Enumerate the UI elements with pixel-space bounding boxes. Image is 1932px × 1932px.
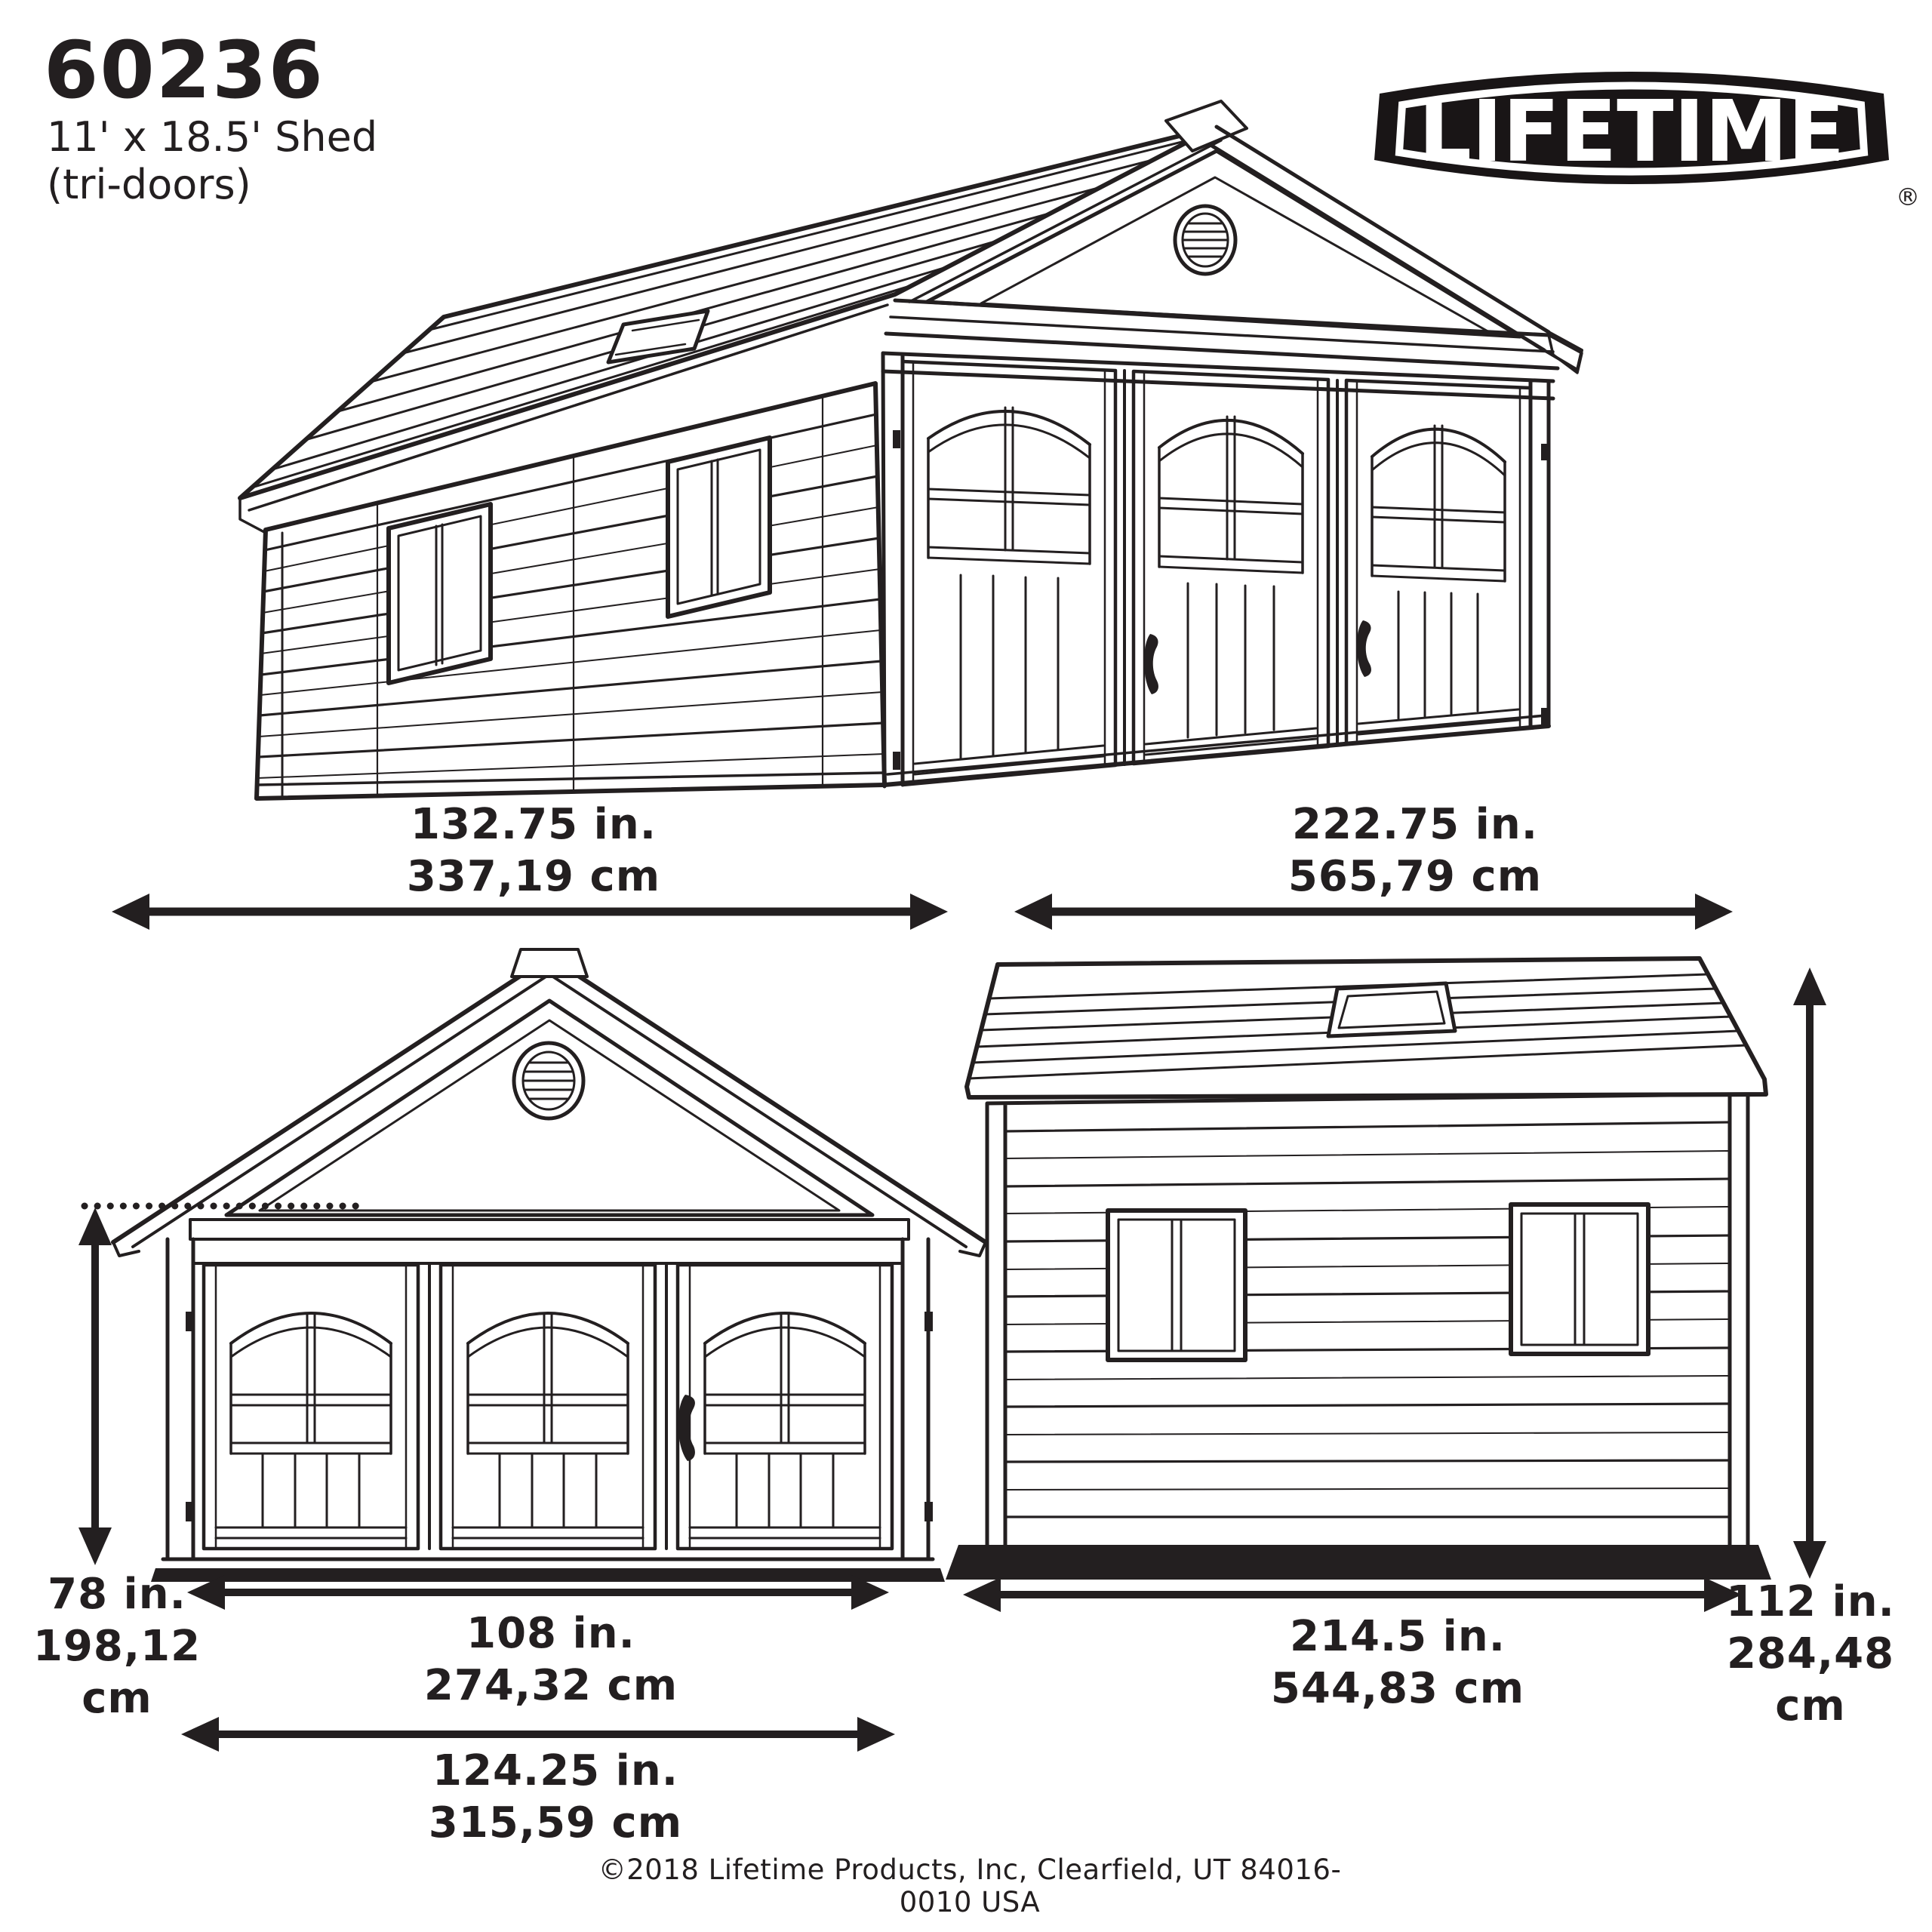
shed-side-view xyxy=(940,943,1932,1600)
hinge-icon xyxy=(893,430,900,448)
shed-isometric-view xyxy=(113,60,1623,823)
dimension-label-front-width: 222.75 in. 565,79 cm xyxy=(1189,798,1641,903)
hinge-icon xyxy=(1541,708,1549,724)
dimension-label-wall-height: 78 in. 198,12 cm xyxy=(0,1568,234,1724)
wall-height-inches: 78 in. xyxy=(0,1568,234,1620)
hinge-icon xyxy=(924,1502,933,1521)
iso-front-facade xyxy=(883,353,1553,786)
front-door xyxy=(204,1265,418,1549)
dimension-label-door-opening-width: 108 in. 274,32 cm xyxy=(325,1607,777,1712)
hinge-icon xyxy=(186,1312,194,1331)
door-opening-width-cm: 274,32 cm xyxy=(325,1660,777,1712)
spec-sheet-page: { "header": { "model_number": "60236", "… xyxy=(0,0,1932,1932)
side-window xyxy=(1511,1204,1648,1354)
registered-trademark-icon: ® xyxy=(1896,183,1920,211)
gable-vent-icon xyxy=(514,1043,583,1118)
side-width-cm: 337,19 cm xyxy=(307,851,760,903)
door-handle-icon xyxy=(678,1395,695,1461)
dimension-label-side-base-width: 214.5 in. 544,83 cm xyxy=(1171,1611,1624,1715)
iso-door xyxy=(1134,371,1328,764)
hinge-icon xyxy=(1541,444,1549,460)
peak-height-inches: 112 in. xyxy=(1690,1576,1930,1628)
side-width-inches: 132.75 in. xyxy=(307,798,760,851)
hinge-icon xyxy=(893,752,900,770)
copyright-line: ©2018 Lifetime Products, Inc, Clearfield… xyxy=(589,1854,1351,1918)
side-wall xyxy=(946,1094,1771,1580)
side-base-width-inches: 214.5 in. xyxy=(1171,1611,1624,1663)
side-base xyxy=(946,1545,1771,1580)
side-window xyxy=(668,438,770,617)
gable-vent-icon xyxy=(1175,206,1235,274)
hinge-icon xyxy=(924,1312,933,1331)
wall-height-cm: 198,12 cm xyxy=(0,1620,234,1724)
skylight xyxy=(608,311,708,362)
side-base-width-cm: 544,83 cm xyxy=(1171,1663,1624,1715)
front-door xyxy=(678,1265,892,1549)
door-handle-icon xyxy=(1144,634,1158,694)
iso-door xyxy=(1346,380,1531,744)
front-base-width-cm: 315,59 cm xyxy=(329,1797,782,1849)
front-door xyxy=(441,1265,655,1549)
side-window xyxy=(389,504,491,683)
door-handle-icon xyxy=(1357,620,1371,677)
dimension-label-peak-height: 112 in. 284,48 cm xyxy=(1690,1576,1930,1732)
front-width-cm: 565,79 cm xyxy=(1189,851,1641,903)
front-wall xyxy=(151,1239,945,1582)
hinge-icon xyxy=(186,1502,194,1521)
front-base xyxy=(151,1568,945,1582)
shed-front-view xyxy=(45,943,1019,1592)
peak-height-cm: 284,48 cm xyxy=(1690,1628,1930,1732)
front-base-width-inches: 124.25 in. xyxy=(329,1745,782,1797)
dimension-label-side-width: 132.75 in. 337,19 cm xyxy=(307,798,760,903)
skylight xyxy=(1328,983,1455,1036)
side-roof xyxy=(967,958,1766,1097)
iso-door xyxy=(903,361,1115,785)
front-width-inches: 222.75 in. xyxy=(1189,798,1641,851)
dimension-label-front-base-width: 124.25 in. 315,59 cm xyxy=(329,1745,782,1849)
side-window xyxy=(1108,1211,1245,1360)
door-opening-width-inches: 108 in. xyxy=(325,1607,777,1660)
